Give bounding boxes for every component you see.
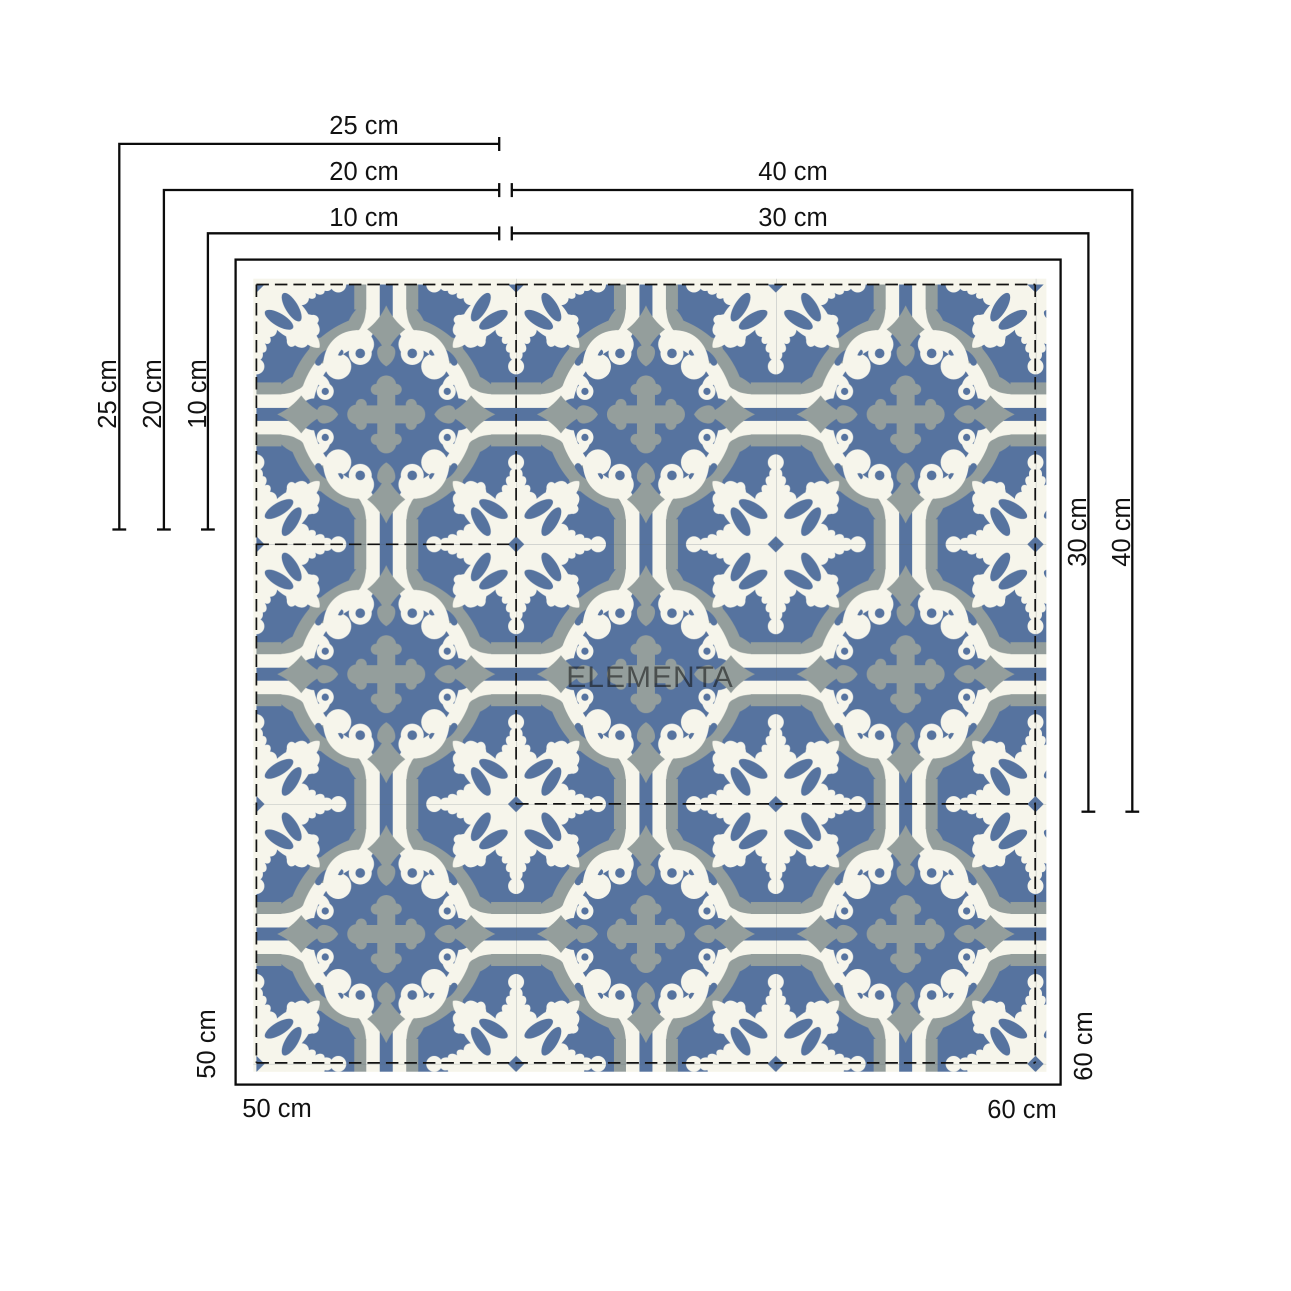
- svg-text:30 cm: 30 cm: [1064, 497, 1092, 566]
- svg-text:ELEMENTA: ELEMENTA: [566, 661, 733, 694]
- svg-text:40 cm: 40 cm: [1108, 497, 1136, 566]
- svg-text:10 cm: 10 cm: [329, 204, 398, 232]
- svg-text:20 cm: 20 cm: [139, 359, 167, 428]
- svg-text:25 cm: 25 cm: [94, 359, 122, 428]
- svg-text:30 cm: 30 cm: [758, 204, 827, 232]
- svg-text:25 cm: 25 cm: [329, 112, 398, 140]
- svg-text:50 cm: 50 cm: [193, 1009, 221, 1078]
- svg-text:60 cm: 60 cm: [987, 1096, 1056, 1124]
- svg-text:60 cm: 60 cm: [1070, 1011, 1098, 1080]
- svg-text:10 cm: 10 cm: [184, 359, 212, 428]
- svg-text:40 cm: 40 cm: [758, 158, 827, 186]
- svg-text:20 cm: 20 cm: [329, 158, 398, 186]
- svg-text:50 cm: 50 cm: [242, 1095, 311, 1123]
